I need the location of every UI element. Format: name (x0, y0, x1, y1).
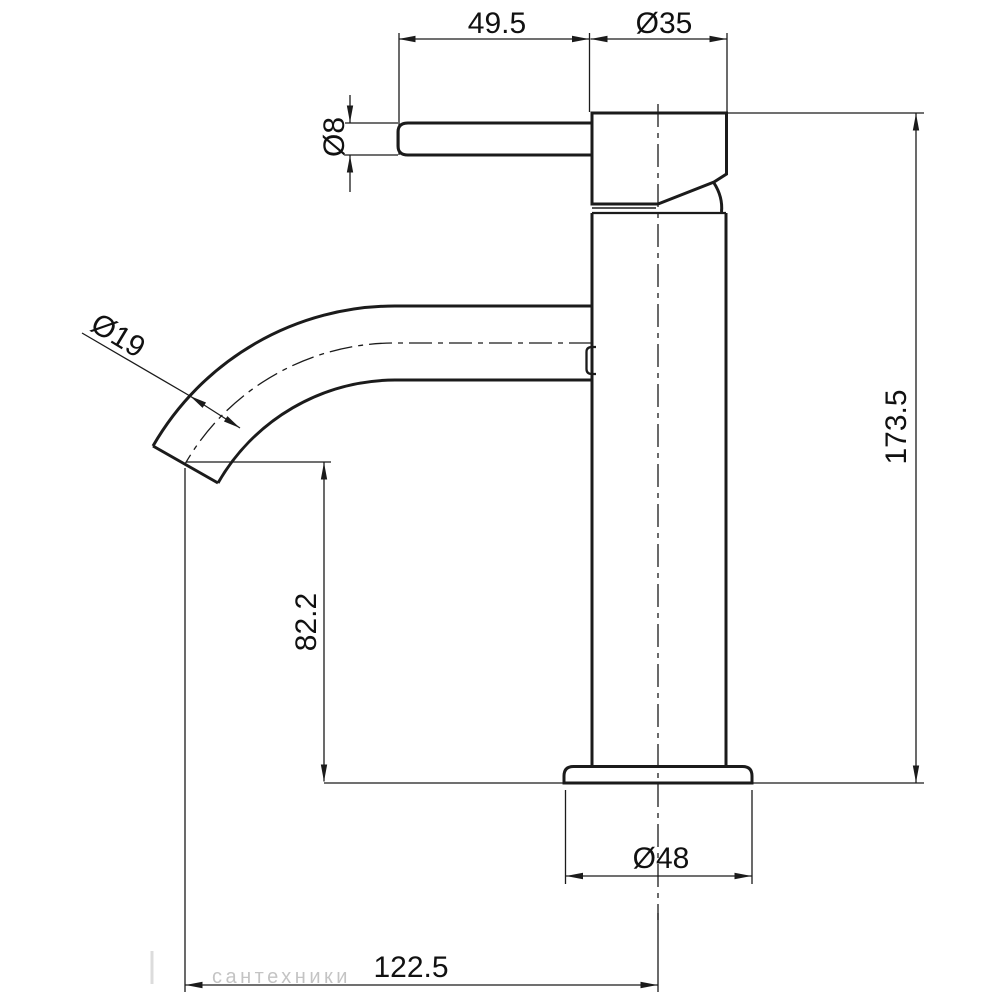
label-spout-outlet-height: 82.2 (290, 593, 323, 651)
label-base-diameter: Ø48 (633, 842, 690, 875)
extension-lines (185, 33, 924, 992)
watermark-text: сантехники (212, 966, 351, 988)
label-spout-reach: 122.5 (373, 951, 448, 984)
dim-line-spout-diameter (190, 396, 240, 428)
label-handle-diameter: Ø8 (318, 117, 351, 157)
faucet-dimension-drawing: 49.5 Ø35 Ø8 Ø19 173.5 82.2 Ø48 122.5 сан… (0, 0, 1000, 1000)
technical-drawing-page: 49.5 Ø35 Ø8 Ø19 173.5 82.2 Ø48 122.5 сан… (0, 0, 1000, 1000)
label-head-diameter: Ø35 (636, 7, 693, 40)
dimension-lines (82, 39, 916, 985)
faucet-body (592, 213, 726, 766)
ext-handle-diameter (345, 123, 398, 155)
label-overall-height: 173.5 (880, 389, 913, 464)
watermark-fragment (151, 951, 154, 984)
label-spout-diameter: Ø19 (85, 307, 151, 364)
spout-inner-edge (218, 380, 592, 483)
watermark: сантехники (151, 951, 351, 988)
mixer-head (592, 113, 727, 204)
mixer-head-skirt (714, 183, 722, 212)
faucet-outline (153, 113, 752, 783)
spout-outer-edge (153, 306, 592, 446)
centerlines (185, 104, 658, 920)
lever-handle (398, 123, 592, 155)
label-handle-length: 49.5 (468, 7, 526, 40)
